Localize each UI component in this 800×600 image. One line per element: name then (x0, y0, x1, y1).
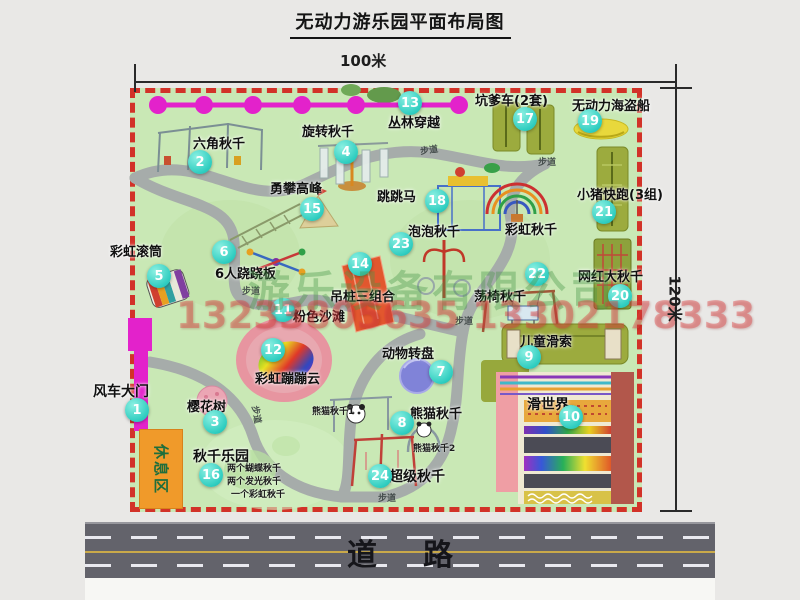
label-super-swing: 超级秋千 (389, 466, 445, 486)
swing-park-detail-2: 两个发光秋千 (227, 474, 281, 487)
marker-rainbow-roller: 5 (147, 264, 171, 288)
marker-hexagon-swing: 2 (188, 150, 212, 174)
marker-swing-park: 16 (199, 463, 223, 487)
label-piggy-run: 小猪快跑(3组) (577, 184, 663, 203)
label-rotating-swing: 旋转秋千 (302, 121, 354, 140)
marker-kids-zipline: 9 (517, 345, 541, 369)
marker-super-swing: 24 (368, 464, 392, 488)
playground-plan-screenshot: 无动力游乐园平面布局图 100米 120米 (0, 0, 800, 600)
label-animal-carousel: 动物转盘 (382, 343, 434, 362)
rest-area: 休息区 (139, 429, 183, 509)
right-dimension-tick-bottom (660, 510, 692, 512)
marker-bounce-cloud: 12 (261, 338, 285, 362)
label-rainbow-swing: 彩虹秋千 (505, 219, 557, 238)
marker-seesaw-6p: 6 (212, 240, 236, 264)
width-dimension-label: 100米 (340, 50, 386, 71)
road-sidewalk (85, 578, 715, 600)
label-rainbow-roller: 彩虹滚筒 (110, 241, 162, 260)
marker-rotating-swing: 4 (334, 140, 358, 164)
page-title: 无动力游乐园平面布局图 (290, 8, 511, 39)
label-bubble-swing: 泡泡秋千 (408, 221, 460, 240)
footpath-label: 步道 (419, 142, 439, 157)
swing-park-detail-1: 两个蝴蝶秋千 (227, 461, 281, 474)
top-dimension-line (135, 81, 677, 83)
label-jumping-horse: 跳跳马 (377, 186, 416, 205)
page-title-row: 无动力游乐园平面布局图 (0, 8, 800, 39)
rest-area-label: 休息区 (151, 443, 172, 494)
marker-climbing-peak: 15 (300, 197, 324, 221)
marker-jungle-crossing: 13 (398, 91, 422, 115)
road-label: 道路 (347, 530, 499, 574)
label-climbing-peak: 勇攀高峰 (270, 178, 322, 197)
marker-piggy-run: 21 (592, 200, 616, 224)
marker-windmill-gate: 1 (125, 398, 149, 422)
height-dimension-label: 120米 (665, 275, 686, 321)
label-panda-swing-2: 熊猫秋千2 (413, 441, 455, 454)
marker-panda-swing: 8 (390, 411, 414, 435)
label-panda-swing: 熊猫秋千 (410, 403, 462, 422)
footpath-label: 步道 (378, 491, 396, 504)
label-panda-swing-1: 熊猫秋千1 (312, 404, 354, 417)
marker-slide-world: 10 (559, 405, 583, 429)
marker-pirate-ship: 19 (578, 109, 602, 133)
road: 道路 (85, 522, 715, 580)
top-dimension-tick-left (134, 64, 136, 92)
marker-pit-cart: 17 (513, 107, 537, 131)
footpath-label: 步道 (538, 155, 556, 168)
marker-jumping-horse: 18 (425, 189, 449, 213)
label-jungle-crossing: 丛林穿越 (388, 112, 440, 131)
marker-bubble-swing: 23 (389, 232, 413, 256)
label-bounce-cloud: 彩虹蹦蹦云 (255, 368, 320, 387)
right-dimension-tick-top (660, 87, 692, 89)
swing-park-detail-3: 一个彩虹秋千 (231, 487, 285, 500)
label-pit-cart: 坑爹车(2套) (475, 90, 548, 109)
marker-cherry-tree: 3 (203, 410, 227, 434)
marker-animal-carousel: 7 (429, 360, 453, 384)
